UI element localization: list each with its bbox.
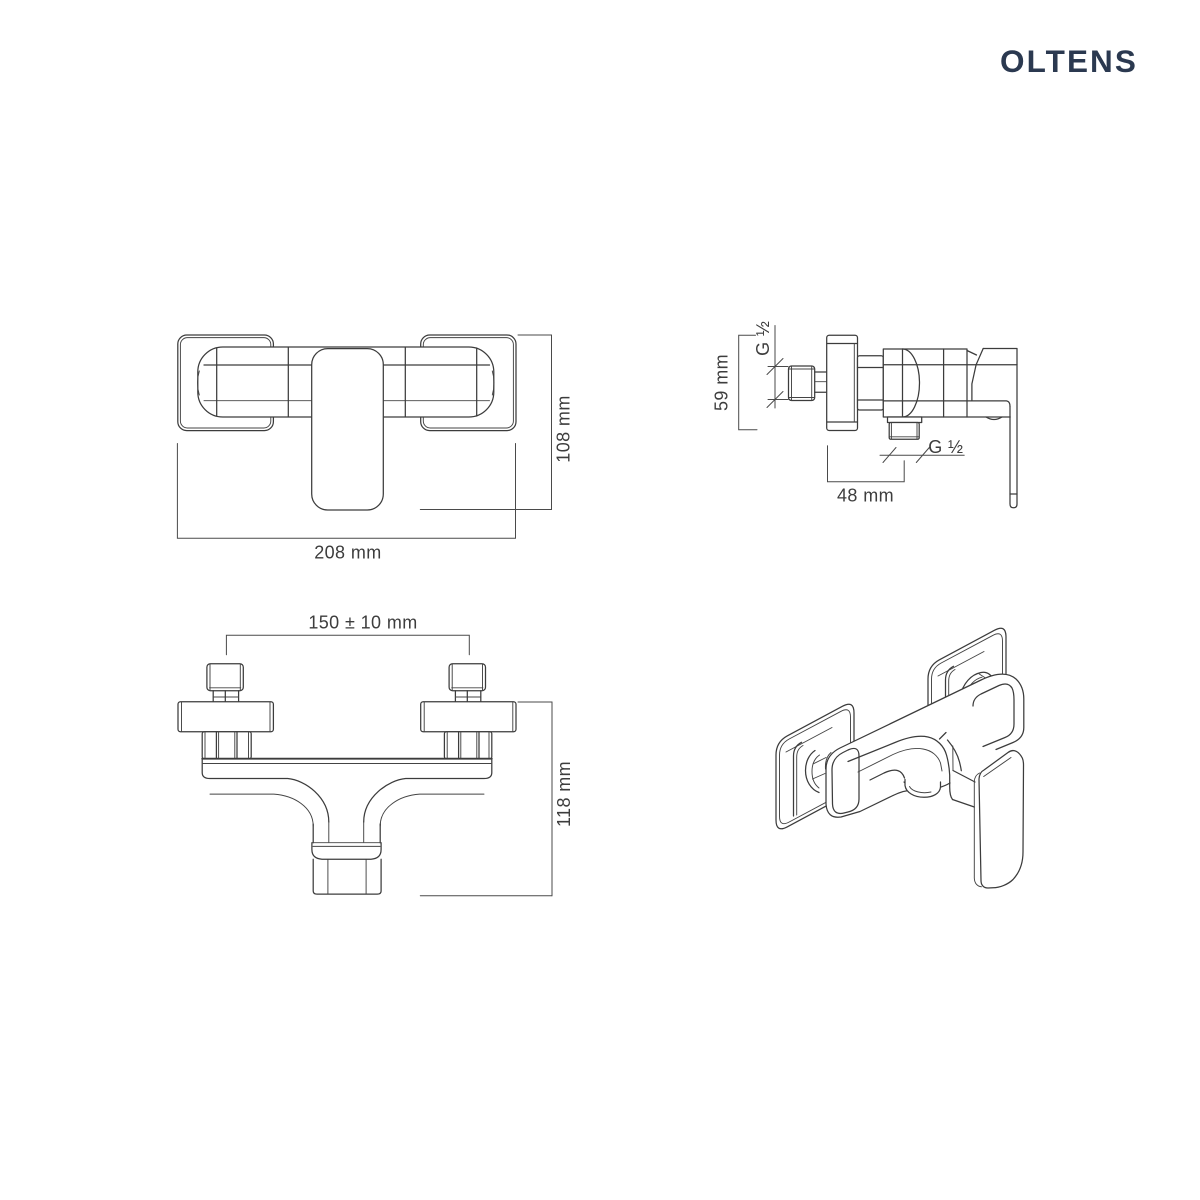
svg-text:150 ± 10 mm: 150 ± 10 mm [308,613,417,633]
svg-text:108 mm: 108 mm [554,395,574,462]
svg-text:48 mm: 48 mm [837,486,894,506]
svg-text:59 mm: 59 mm [712,354,732,411]
svg-text:OLTENS: OLTENS [1000,43,1138,79]
svg-text:208 mm: 208 mm [314,542,381,562]
svg-text:G ½: G ½ [753,321,773,356]
svg-text:118 mm: 118 mm [554,761,574,827]
svg-text:G ½: G ½ [928,437,963,457]
